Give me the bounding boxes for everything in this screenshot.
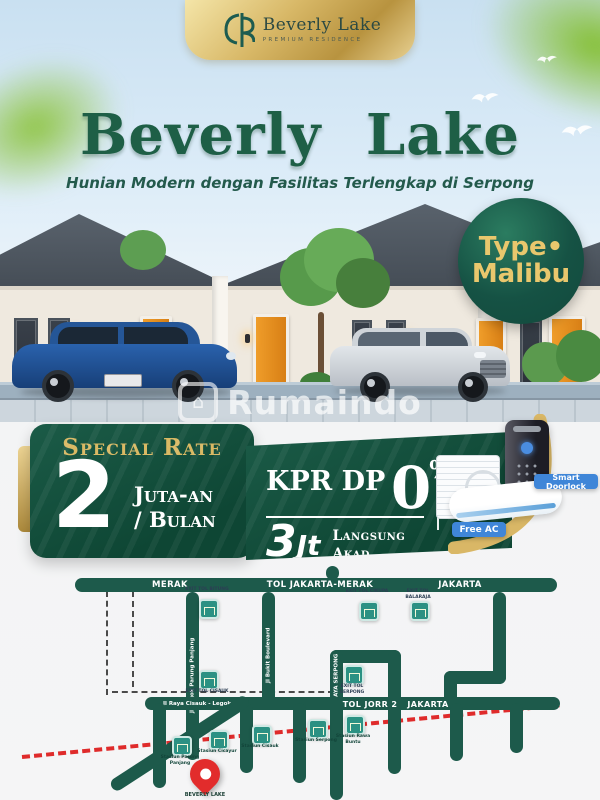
free-ac-label: Free AC — [452, 522, 506, 537]
house-icon: ⌂ — [178, 382, 218, 422]
brand-text: Beverly Lake PREMIUM RESIDENCE — [263, 17, 382, 43]
rate-number: 2 — [52, 450, 116, 542]
offer-section: Special Rate 2 Juta-an / Bulan KPR DP 0%… — [0, 418, 600, 568]
rate-unit: Juta-an / Bulan — [134, 482, 216, 532]
type-badge-line2: Malibu — [472, 261, 570, 288]
kpr-label: KPR DP — [266, 466, 385, 497]
toll-gate-icon — [199, 670, 219, 690]
shrub — [556, 330, 600, 382]
road-loop-right — [388, 650, 401, 774]
tree — [336, 258, 390, 308]
tree — [120, 230, 166, 270]
special-rate-card: Special Rate 2 Juta-an / Bulan — [30, 424, 254, 558]
brand-logo-icon — [219, 10, 255, 50]
road-label: JAKARTA — [407, 700, 448, 709]
station-icon — [209, 730, 229, 750]
exit-label: EXIT TOL SERPONG — [330, 684, 374, 695]
road-vertical — [510, 703, 523, 753]
exit-label: EXIT TOL CIKUPA — [345, 589, 389, 595]
exit-label: EXIT TOL CISAUK — [185, 689, 229, 695]
page-subtitle: Hunian Modern dengan Fasilitas Terlengka… — [0, 174, 600, 192]
type-badge-line1: Type• — [479, 234, 563, 261]
road-vertical — [450, 703, 463, 761]
page-title: Beverly Lake — [0, 102, 600, 168]
road-tol-jorr2: Jl Raya Cisauk - Legok TOL JORR 2 JAKART… — [145, 697, 560, 710]
location-map: MERAK TOL JAKARTA-MERAK JAKARTA Jl Legok… — [0, 565, 600, 800]
street-label: Jl Raya Cisauk - Legok — [163, 701, 231, 707]
watermark-text: Rumaindo — [227, 383, 422, 422]
house-roof — [0, 214, 235, 288]
brand-name: Beverly Lake — [263, 17, 382, 34]
toll-gate-icon — [199, 599, 219, 619]
road-tol-jakarta-merak: MERAK TOL JAKARTA-MERAK JAKARTA — [75, 578, 557, 592]
wall-lamp — [245, 334, 250, 343]
toll-gate-icon — [344, 665, 364, 685]
kpr-zero: 0 — [391, 454, 429, 522]
station-icon — [345, 715, 365, 735]
toll-gate-icon — [359, 601, 379, 621]
road-label: TOL JORR 2 — [343, 700, 398, 709]
toll-gate-icon — [410, 601, 430, 621]
dove-icon — [536, 52, 558, 67]
pin-label: BEVERLY LAKE — [175, 792, 235, 798]
street-label-vertical: Jl Bukit Boulevard — [262, 610, 275, 700]
type-malibu-badge: Type• Malibu — [458, 198, 584, 324]
booking-offer: 3 Jt Langsung Akad — [266, 520, 405, 564]
exit-label: EXIT TOL BITUNG — [185, 587, 229, 593]
minor-road-dashed — [106, 591, 108, 695]
station-icon — [308, 719, 328, 739]
brand-badge: Beverly Lake PREMIUM RESIDENCE — [185, 0, 415, 60]
road-label: MERAK — [152, 580, 188, 590]
minor-road-dashed — [132, 591, 134, 687]
smart-doorlock-label: Smart Doorlock — [534, 474, 598, 489]
booking-number: 3 — [266, 520, 297, 564]
street-label-vertical: Jl Legok Parung Panjang — [186, 620, 199, 730]
kpr-offer: KPR DP 0% — [266, 454, 452, 522]
railway-line — [22, 703, 560, 759]
station-label: Stasiun Cicayur — [195, 749, 239, 755]
road-label: JAKARTA — [438, 580, 482, 590]
station-icon — [252, 725, 272, 745]
poster-root: Beverly Lake PREMIUM RESIDENCE Beverly L… — [0, 0, 600, 800]
station-label: Stasiun Cisauk — [238, 744, 282, 750]
station-label: Stasiun Rawa Buntu — [331, 734, 375, 745]
booking-suffix: Jt — [297, 532, 321, 560]
booking-note: Langsung Akad — [332, 528, 405, 563]
road-stub-north — [326, 566, 339, 580]
station-icon — [172, 736, 192, 756]
brand-tagline: PREMIUM RESIDENCE — [263, 37, 382, 43]
exit-label: EXIT TOL BALARAJA — [396, 589, 440, 600]
